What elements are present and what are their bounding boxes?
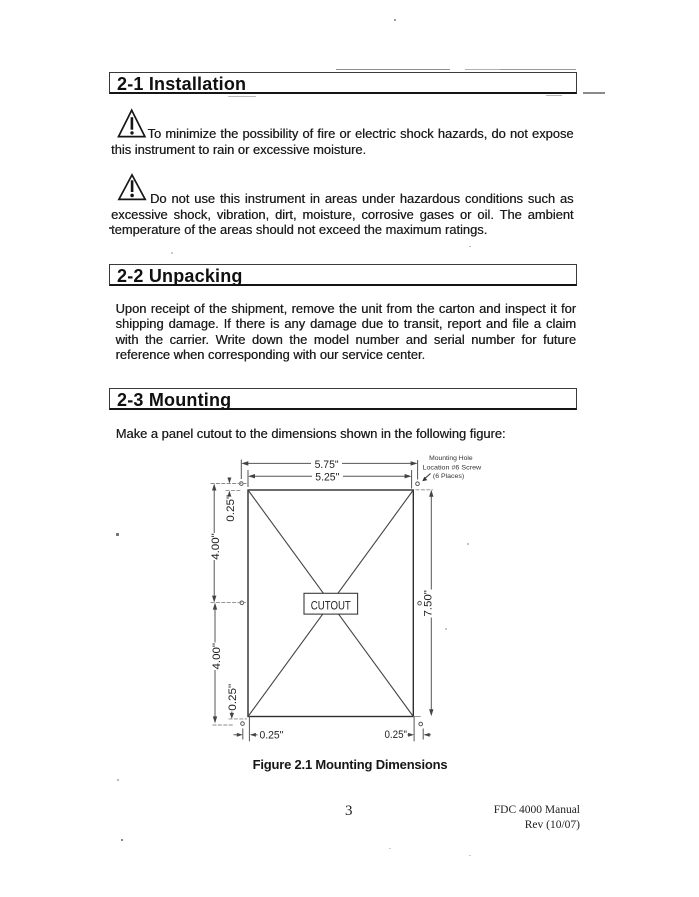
svg-text:CUTOUT: CUTOUT — [311, 600, 351, 612]
svg-text:0.25": 0.25" — [225, 495, 237, 522]
svg-text:0.25": 0.25" — [227, 684, 239, 711]
svg-text:Location #6 Screw: Location #6 Screw — [423, 465, 482, 472]
svg-text:(6 Places): (6 Places) — [433, 473, 464, 480]
svg-text:4.00": 4.00" — [210, 533, 222, 560]
svg-text:Mounting Hole: Mounting Hole — [429, 455, 473, 462]
svg-text:0.25": 0.25" — [385, 729, 408, 741]
svg-text:0.25": 0.25" — [260, 730, 284, 742]
svg-text:5.25": 5.25" — [315, 471, 339, 483]
svg-text:5.75": 5.75" — [315, 459, 339, 471]
svg-text:7.50": 7.50" — [423, 590, 435, 617]
svg-text:4.00": 4.00" — [211, 643, 223, 670]
